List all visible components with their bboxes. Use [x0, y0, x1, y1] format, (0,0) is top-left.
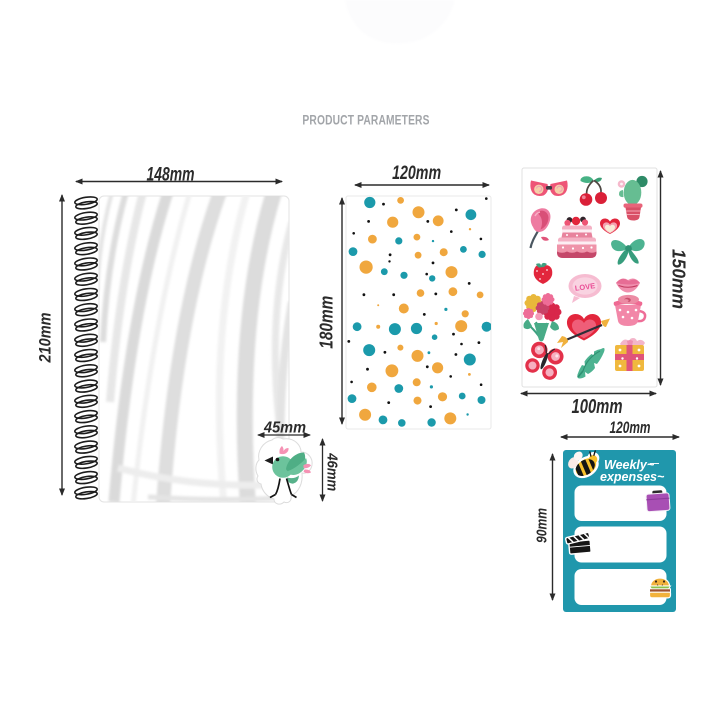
svg-text:46mm: 46mm	[323, 452, 340, 491]
svg-text:—: —	[650, 458, 659, 468]
svg-text:120mm: 120mm	[610, 418, 651, 437]
svg-text:expenses~: expenses~	[600, 470, 665, 484]
svg-text:148mm: 148mm	[147, 165, 195, 186]
svg-text:210mm: 210mm	[35, 313, 54, 364]
svg-text:45mm: 45mm	[263, 420, 306, 437]
svg-text:180mm: 180mm	[317, 296, 337, 349]
svg-text:100mm: 100mm	[572, 396, 623, 418]
svg-text:120mm: 120mm	[392, 163, 441, 184]
svg-text:150mm: 150mm	[669, 249, 689, 309]
svg-text:90mm: 90mm	[534, 508, 551, 543]
svg-text:PRODUCT PARAMETERS: PRODUCT PARAMETERS	[302, 112, 429, 128]
